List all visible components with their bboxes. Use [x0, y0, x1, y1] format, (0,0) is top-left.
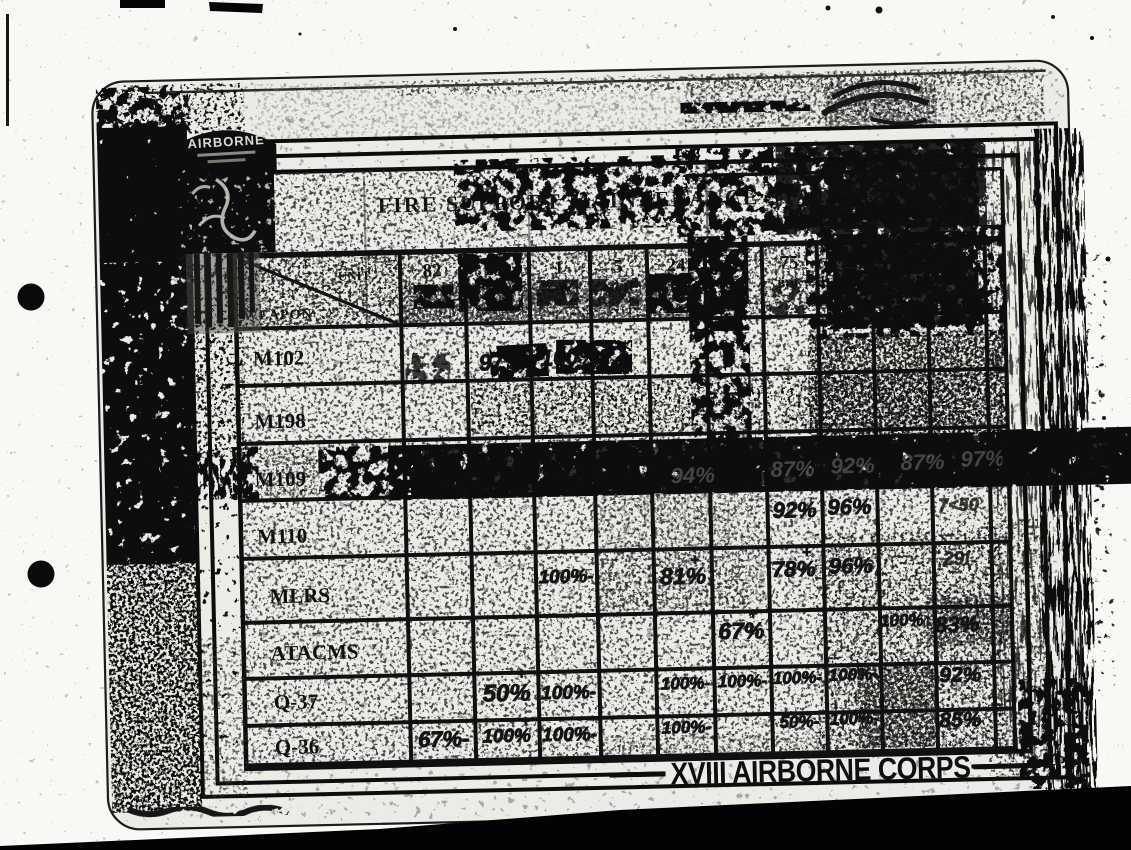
svg-text:100%: 100% [482, 725, 531, 747]
svg-text:5: 5 [613, 256, 623, 277]
svg-text:100%-: 100%- [718, 671, 768, 691]
svg-text:100%-: 100%- [662, 717, 712, 737]
svg-text:50%: 50% [482, 679, 531, 707]
svg-text:MLRS: MLRS [269, 583, 330, 608]
svg-text:M198: M198 [254, 408, 306, 433]
svg-text:100%-: 100%- [538, 566, 593, 588]
svg-text:7<50: 7<50 [938, 494, 979, 515]
svg-text:M102: M102 [253, 345, 305, 370]
svg-text:+: + [748, 605, 757, 622]
svg-text:M110: M110 [257, 523, 308, 548]
svg-text:82: 82 [422, 260, 441, 281]
svg-text:75: 75 [779, 252, 798, 273]
svg-text:+: + [802, 544, 811, 561]
svg-text:50%-: 50%- [779, 712, 819, 732]
svg-text:67%: 67% [718, 617, 765, 644]
svg-text:Q-36: Q-36 [275, 734, 320, 759]
svg-text:87%: 87% [900, 449, 945, 475]
svg-text:1: 1 [554, 258, 564, 279]
svg-text:87%: 87% [770, 456, 815, 482]
svg-text:ATACMS: ATACMS [270, 639, 358, 665]
svg-text:96%: 96% [827, 494, 872, 520]
svg-text:100%-: 100%- [773, 668, 823, 688]
svg-text:+: + [521, 712, 530, 728]
svg-text:100%-: 100%- [541, 682, 596, 704]
svg-text:92%: 92% [830, 453, 875, 479]
svg-text:100%-: 100%- [661, 673, 711, 693]
svg-text:92%: 92% [772, 497, 817, 523]
svg-text:100%-: 100%- [542, 724, 597, 746]
svg-text:94%: 94% [670, 462, 715, 488]
svg-text:67%-: 67%- [418, 726, 470, 752]
svg-text:Q-37: Q-37 [274, 689, 319, 714]
svg-text:+: + [517, 666, 526, 683]
